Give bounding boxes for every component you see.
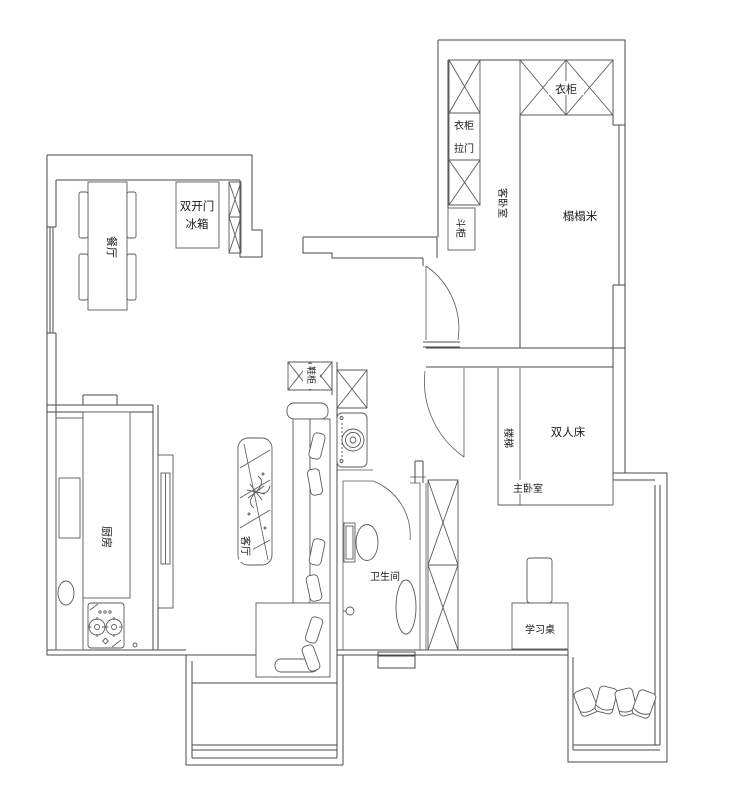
master-bedroom-door-icon (424, 368, 464, 457)
toilet (344, 523, 378, 562)
tatami-label: 榻榻米 (563, 209, 598, 223)
shoe-cabinet-label: 鞋柜 (306, 366, 317, 384)
floor-plan-canvas: 餐厅 双开门 冰箱 衣柜 衣柜 拉门 斗柜 客卧室 榻榻米 鞋柜 (0, 0, 740, 800)
kitchen: 厨房 (56, 412, 137, 650)
fridge (176, 182, 219, 248)
rug: 客厅 (238, 438, 272, 565)
fridge-label-line2: 冰箱 (186, 217, 209, 231)
ladder-label: 楼梯 (502, 428, 515, 448)
fridge-label-line1: 双开门 (180, 199, 215, 213)
guest-bedroom: 衣柜 衣柜 拉门 斗柜 客卧室 榻榻米 (448, 60, 613, 250)
wardrobe-label: 衣柜 (555, 82, 577, 96)
bathtub-basin (396, 580, 416, 634)
balcony-chair-icon (573, 687, 599, 718)
wardrobe-sliding-label-line2: 拉门 (454, 142, 474, 155)
balcony-chair-icon (594, 685, 618, 715)
kitchen-counter (56, 418, 83, 650)
door-stop (346, 607, 354, 615)
bed-label: 双人床 (551, 425, 586, 439)
entry-door-icon (426, 266, 459, 340)
guest-bedroom-label: 客卧室 (496, 188, 509, 218)
balcony-chair-icon (631, 689, 657, 720)
chest-label: 斗柜 (454, 218, 467, 238)
kitchen-sink (58, 581, 74, 605)
master-balcony (573, 685, 657, 719)
dining-label: 餐厅 (105, 236, 119, 258)
living-room-label: 客厅 (239, 536, 252, 556)
dining-room: 餐厅 双开门 冰箱 (79, 182, 241, 310)
kitchen-island (83, 412, 130, 598)
master-bedroom-label: 主卧室 (513, 482, 543, 495)
bathroom-label: 卫生间 (370, 570, 400, 583)
washing-machine (337, 413, 367, 467)
dining-chair (127, 254, 136, 300)
dining-chair (79, 254, 88, 300)
dining-chair (127, 192, 136, 238)
living-room: 客厅 (158, 403, 330, 677)
outer-walls (47, 40, 667, 765)
duct-column (229, 182, 241, 253)
desk-chair (527, 558, 552, 603)
tv-console (158, 455, 173, 608)
master-bedroom: 楼梯 双人床 主卧室 学习桌 (428, 368, 613, 650)
kitchen-label: 厨房 (100, 526, 113, 548)
tall-wardrobe (428, 480, 458, 650)
bathroom: 卫生间 (343, 523, 416, 668)
wardrobe-sliding-label-line1: 衣柜 (454, 119, 474, 132)
bathroom-threshold (378, 652, 415, 668)
desk-label: 学习桌 (525, 623, 555, 636)
gas-stove (88, 603, 137, 648)
floor-plan-drawing: 餐厅 双开门 冰箱 衣柜 衣柜 拉门 斗柜 客卧室 榻榻米 鞋柜 (0, 0, 740, 800)
hall-duct (337, 370, 367, 408)
dining-chair (79, 192, 88, 238)
